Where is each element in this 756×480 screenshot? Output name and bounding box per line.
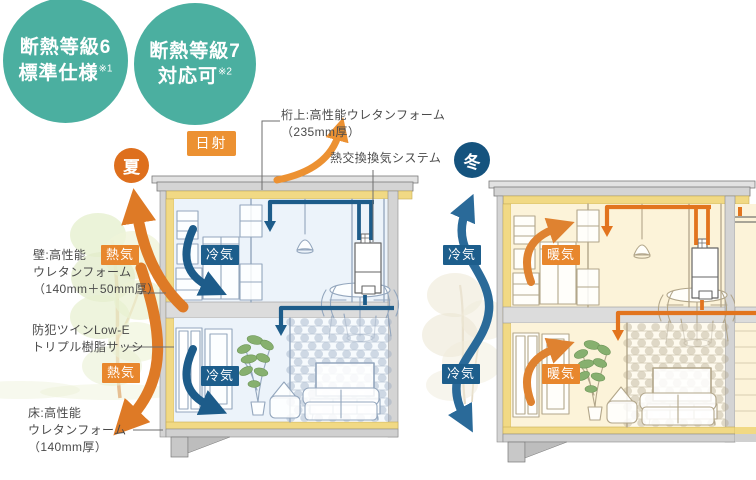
solar-radiation-label: 日射 [187,131,236,156]
grade7-badge: 断熱等級7 対応可※2 [134,3,256,125]
summer-house [152,176,418,457]
floor-label-line3: （140mm厚） [28,439,126,456]
window-label-line1: 防犯ツインLow-E [32,322,144,339]
hot-air-badge-lower: 熱気 [102,363,140,383]
window-sash-label: 防犯ツインLow-E トリプル樹脂サッシ [32,322,144,356]
grade7-line1: 断熱等級7 [149,39,241,64]
girder-insulation-label: 桁上:高性能ウレタンフォーム （235mm厚） [281,107,445,141]
wall-label-line3: （140mm＋50mm厚） [33,281,160,298]
heat-exchange-ventilation-label: 熱交換換気システム [330,150,441,167]
winter-badge: 冬 [454,142,490,178]
wall-label-line2: ウレタンフォーム [33,264,160,281]
grade6-line1: 断熱等級6 [20,35,112,60]
warm-air-badge-upper: 暖気 [542,245,580,265]
winter-cold-badge-upper: 冷気 [443,245,481,265]
grade6-badge: 断熱等級6 標準仕様※1 [3,0,128,123]
girder-label-line1: 桁上:高性能ウレタンフォーム [281,107,445,124]
girder-label-line2: （235mm厚） [281,124,445,141]
grade7-line2: 対応可 [158,66,218,87]
window-label-line2: トリプル樹脂サッシ [32,339,144,356]
grade6-line2: 標準仕様 [19,63,99,84]
grade7-note: ※2 [218,67,232,78]
wall-label-line1: 壁:高性能 [33,247,160,264]
winter-cold-badge-lower: 冷気 [442,364,480,384]
floor-label-line1: 床:高性能 [28,405,126,422]
floor-insulation-label: 床:高性能 ウレタンフォーム （140mm厚） [28,405,126,456]
summer-badge: 夏 [114,148,149,183]
warm-air-badge-lower: 暖気 [542,364,580,384]
insulation-infographic: 断熱等級6 標準仕様※1 断熱等級7 対応可※2 夏 冬 日射 熱気 熱気 冷気… [0,0,756,480]
floor-label-line2: ウレタンフォーム [28,422,126,439]
grade6-line2-wrap: 標準仕様※1 [19,61,113,86]
grade7-line2-wrap: 対応可※2 [158,64,232,89]
wall-insulation-label: 壁:高性能 ウレタンフォーム （140mm＋50mm厚） [33,247,160,298]
summer-cool-badge-upper: 冷気 [201,245,239,265]
ventilation-label-line1: 熱交換換気システム [330,150,441,167]
winter-house [489,181,756,462]
grade6-note: ※1 [99,63,113,74]
winter-tree [422,273,509,404]
summer-cool-badge-lower: 冷気 [201,366,239,386]
